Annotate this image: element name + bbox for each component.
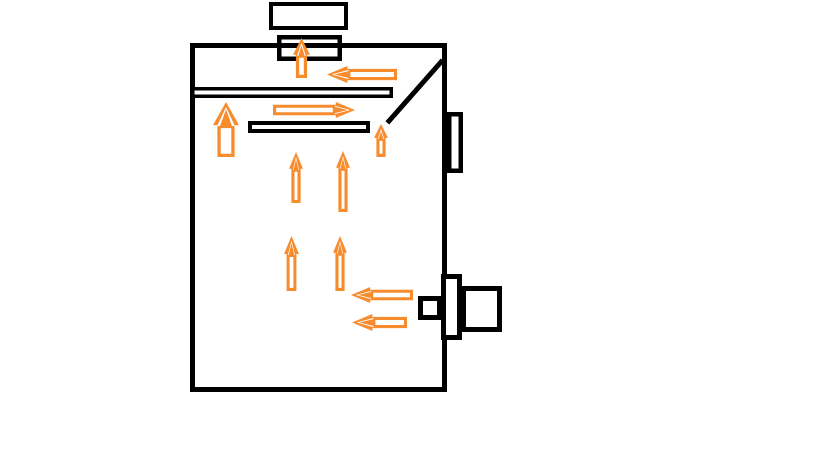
chimney-cap	[271, 4, 346, 28]
lower-baffle-plate	[250, 123, 368, 131]
upper-baffle-plate	[193, 89, 392, 97]
damper-inner-square	[421, 299, 440, 318]
furnace-airflow-diagram	[0, 0, 816, 460]
side-port-upper	[449, 114, 461, 171]
drawing-canvas	[0, 0, 816, 460]
flue-outer-box	[464, 289, 500, 330]
flue-collar	[444, 277, 460, 338]
